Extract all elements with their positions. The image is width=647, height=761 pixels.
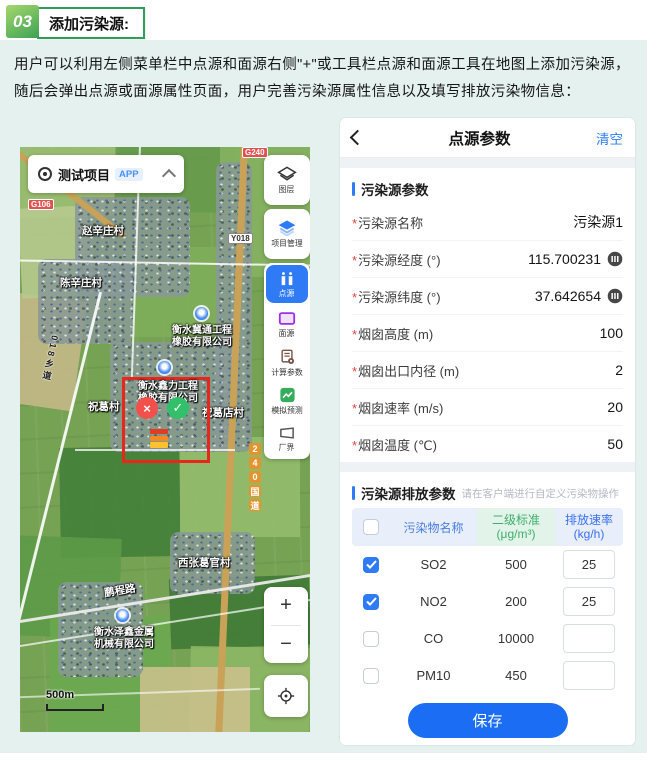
tool-point-source[interactable]: 点源: [266, 265, 308, 303]
tool-calc-params[interactable]: 计算参数: [264, 344, 310, 382]
pollutant-name: CO: [390, 631, 477, 646]
app-badge: APP: [115, 168, 143, 181]
source-params-section: 污染源参数 *污染源名称 污染源1 *污染源经度 (°) 115.700231 …: [340, 168, 635, 462]
tool-label: 项目管理: [271, 237, 302, 248]
clear-button[interactable]: 清空: [596, 128, 623, 148]
rate-input[interactable]: [563, 587, 615, 616]
tool-project-manage[interactable]: 项目管理: [264, 209, 310, 259]
table-header: 污染物名称 二级标准 (μg/m³) 排放速率 (kg/h): [352, 508, 623, 546]
field-label-text: 烟囱高度 (m): [358, 327, 433, 342]
tool-label: 模拟预测: [271, 404, 302, 415]
field-label-text: 污染源经度 (°): [358, 253, 440, 268]
panel-title: 点源参数: [363, 127, 596, 149]
field-label: *烟囱高度 (m): [352, 324, 433, 343]
col-rate-line1: 排放速率: [565, 513, 613, 527]
field-value[interactable]: 20: [607, 399, 623, 415]
poi-marker[interactable]: [195, 307, 208, 320]
village-label: 陈辛庄村: [60, 275, 102, 290]
pollutant-name: NO2: [390, 594, 477, 609]
field-label: *烟囱速率 (m/s): [352, 398, 443, 417]
required-mark: *: [352, 216, 357, 231]
road-char: 国: [249, 485, 261, 497]
field-row-stack-height: *烟囱高度 (m) 100: [352, 315, 623, 352]
company-label: 衡水泽鑫金属 机械有限公司: [76, 627, 172, 651]
table-row: CO 10000: [352, 620, 623, 657]
table-row: PM10 450: [352, 657, 623, 694]
keypad-icon[interactable]: [607, 251, 623, 267]
field-row-stack-temperature: *烟囱温度 (℃) 50: [352, 426, 623, 462]
toolbar-card-tools: 点源 面源 计算参数 模拟预测: [264, 263, 310, 459]
layers-blue-icon: [277, 220, 297, 236]
intro-text: 用户可以利用左侧菜单栏中点源和面源右侧"+"或工具栏点源和面源工具在地图上添加污…: [14, 52, 636, 106]
point-source-panel: 点源参数 清空 污染源参数 *污染源名称 污染源1 *污染源经度 (°) 115…: [340, 118, 635, 745]
section-title: 污染源排放参数: [361, 483, 456, 503]
company-label: 衡水冀通工程 橡胶有限公司: [154, 325, 250, 349]
road-char: 道: [249, 499, 261, 511]
boundary-icon: [278, 426, 296, 440]
row-checkbox[interactable]: [363, 594, 379, 610]
village-label: 赵辛庄村: [82, 223, 124, 238]
section-number: 03: [6, 5, 39, 38]
road-badge: Y018: [228, 233, 253, 244]
col-standard-line1: 二级标准: [492, 513, 540, 527]
field-label-text: 烟囱温度 (℃): [358, 438, 437, 453]
field-row-name: *污染源名称 污染源1: [352, 204, 623, 241]
tool-factory-boundary[interactable]: 厂界: [264, 421, 310, 459]
project-dot-icon: [38, 167, 52, 181]
road-char: 2: [249, 443, 261, 455]
standard-value: 450: [477, 668, 555, 683]
project-selector[interactable]: 测试项目 APP: [28, 155, 184, 193]
select-all-checkbox[interactable]: [363, 519, 379, 535]
section-title: 污染源参数: [361, 179, 429, 199]
trend-icon: [279, 387, 296, 403]
field-label-text: 污染源名称: [358, 216, 423, 231]
field-label: *烟囱出口内径 (m): [352, 361, 459, 380]
road-badge: G106: [28, 199, 54, 210]
field-value[interactable]: 115.700231: [528, 251, 601, 267]
company-label-line: 机械有限公司: [76, 639, 172, 651]
rate-input[interactable]: [563, 624, 615, 653]
section-bar: [352, 182, 355, 196]
road-char: 4: [249, 457, 261, 469]
village-label: 西张葛官村: [178, 555, 231, 570]
cancel-marker-icon[interactable]: ×: [136, 397, 158, 419]
save-button[interactable]: 保存: [408, 703, 568, 738]
scale-bar: [46, 704, 104, 711]
field-label: *污染源纬度 (°): [352, 287, 441, 306]
toolbar-card-layers: 图层: [264, 155, 310, 205]
col-standard-line2: (μg/m³): [497, 527, 536, 541]
field-value[interactable]: 50: [607, 436, 623, 452]
scale-text: 500m: [46, 689, 74, 701]
marker-stripe: [150, 429, 168, 434]
col-rate: 排放速率 (kg/h): [555, 513, 623, 541]
tool-label: 厂界: [279, 442, 295, 453]
field-value[interactable]: 100: [600, 325, 623, 341]
poi-marker[interactable]: [116, 609, 129, 622]
col-rate-line2: (kg/h): [574, 527, 605, 541]
layers-outline-icon: [277, 166, 297, 182]
poi-marker[interactable]: [158, 361, 171, 374]
company-label-line: 橡胶有限公司: [154, 337, 250, 349]
page-title: 添加污染源:: [37, 7, 145, 39]
field-value[interactable]: 37.642654: [535, 288, 601, 304]
field-row-longitude: *污染源经度 (°) 115.700231: [352, 241, 623, 278]
col-pollutant-name: 污染物名称: [390, 519, 477, 536]
standard-value: 500: [477, 557, 555, 572]
required-mark: *: [352, 364, 357, 379]
required-mark: *: [352, 401, 357, 416]
field-value[interactable]: 污染源1: [573, 212, 623, 232]
field-label: *污染源名称: [352, 213, 423, 232]
field-value[interactable]: 2: [615, 362, 623, 378]
tool-sim-predict[interactable]: 模拟预测: [264, 382, 310, 420]
required-mark: *: [352, 438, 357, 453]
panel-header: 点源参数 清空: [340, 118, 635, 158]
field-row-stack-diameter: *烟囱出口内径 (m) 2: [352, 352, 623, 389]
purple-square-icon: [278, 311, 296, 326]
calc-params-icon: [279, 349, 296, 365]
field-label-text: 污染源纬度 (°): [358, 290, 440, 305]
village-cluster: [38, 259, 133, 344]
toolbar-card-project: 项目管理: [264, 209, 310, 259]
company-label-line: 衡水泽鑫金属: [76, 627, 172, 639]
rate-input[interactable]: [563, 550, 615, 579]
company-label-line: 衡水冀通工程: [154, 325, 250, 337]
locate-button[interactable]: [264, 675, 308, 717]
map-scale: 500m: [46, 685, 104, 711]
section-hint: 请在客户端进行自定义污染物操作: [462, 486, 620, 501]
road-label-240-national: 2 4 0 国 道: [249, 443, 261, 513]
tool-label: 图层: [279, 183, 295, 194]
pollutant-name: PM10: [390, 668, 477, 683]
satellite-map[interactable]: G240 G106 Y018 2 4 0 国 道 018乡道 鹏程路 赵辛庄村 …: [20, 147, 310, 732]
tool-area-source[interactable]: 面源: [264, 305, 310, 343]
locate-icon: [277, 687, 295, 705]
point-source-marker-icon[interactable]: [150, 429, 168, 450]
tool-layers[interactable]: 图层: [264, 155, 310, 205]
tool-label: 面源: [279, 327, 295, 338]
company-label-line: 衡水鑫力工程: [120, 381, 216, 393]
standard-value: 10000: [477, 631, 555, 646]
field-row-stack-velocity: *烟囱速率 (m/s) 20: [352, 389, 623, 426]
marker-stripe: [150, 436, 168, 441]
field-row-latitude: *污染源纬度 (°) 37.642654: [352, 278, 623, 315]
required-mark: *: [352, 290, 357, 305]
zoom-control: + −: [264, 587, 308, 663]
required-mark: *: [352, 253, 357, 268]
field-label-text: 烟囱速率 (m/s): [358, 401, 443, 416]
chimney-icon: [278, 270, 296, 286]
row-checkbox[interactable]: [363, 631, 379, 647]
road-name-label: 鹏程路: [103, 583, 136, 600]
zoom-out-button[interactable]: −: [264, 626, 308, 664]
pollutant-name: SO2: [390, 557, 477, 572]
road-char: 0: [249, 471, 261, 483]
field-label: *污染源经度 (°): [352, 250, 441, 269]
tool-label: 计算参数: [271, 366, 302, 377]
marker-stripe: [150, 442, 168, 448]
section-bar: [352, 486, 355, 500]
standard-value: 200: [477, 594, 555, 609]
keypad-icon[interactable]: [607, 288, 623, 304]
table-row: SO2 500: [352, 546, 623, 583]
rate-input[interactable]: [563, 661, 615, 690]
chevron-up-icon: [162, 169, 176, 183]
field-label: *烟囱温度 (℃): [352, 435, 437, 454]
village-label: 祝葛村: [88, 399, 120, 414]
field-label-text: 烟囱出口内径 (m): [358, 364, 459, 379]
save-bar: 保存: [340, 695, 635, 745]
tool-label: 点源: [279, 287, 295, 298]
zoom-in-button[interactable]: +: [264, 587, 308, 625]
row-checkbox[interactable]: [363, 668, 379, 684]
confirm-marker-icon[interactable]: ✓: [167, 397, 189, 419]
col-standard: 二级标准 (μg/m³): [477, 508, 555, 546]
row-checkbox[interactable]: [363, 557, 379, 573]
required-mark: *: [352, 327, 357, 342]
project-name: 测试项目: [58, 165, 110, 184]
field-patch: [140, 667, 250, 732]
table-row: NO2 200: [352, 583, 623, 620]
